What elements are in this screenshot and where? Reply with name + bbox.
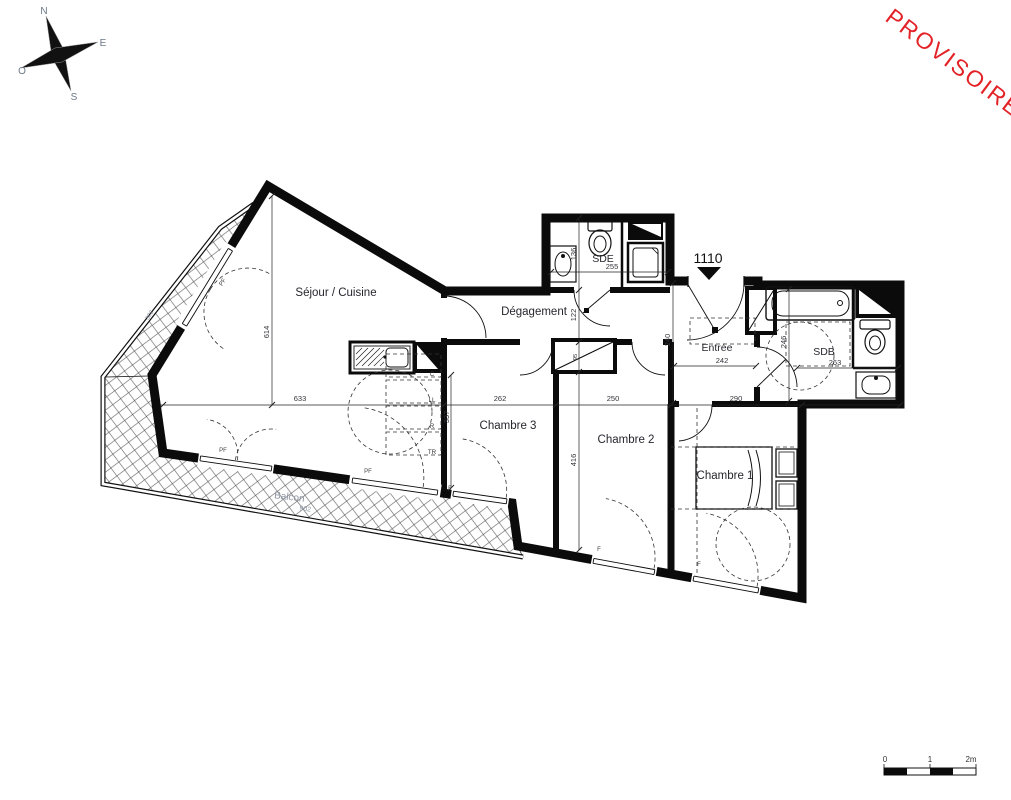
f-chambre1-label: F — [697, 562, 701, 568]
scale-bar: 0 1 2m — [883, 755, 977, 775]
floor-plan-drawing: 633 262 250 290 242 255 263 614 136 122 … — [0, 0, 1011, 800]
kitchen-sink-icon — [350, 342, 414, 373]
unit-number: 1110 — [693, 250, 722, 266]
entree-closet — [553, 340, 615, 372]
dim-sdb-width: 263 — [829, 358, 842, 367]
dim-sejour-height: 614 — [262, 326, 271, 339]
floor-plan-page: 633 262 250 290 242 255 263 614 136 122 … — [0, 0, 1011, 800]
dim-entree-height: 240 — [663, 334, 672, 347]
provisoire-watermark: PROVISOIRE — [881, 3, 1011, 122]
sde-toilet-icon — [588, 221, 612, 256]
scale-zero: 0 — [883, 755, 888, 764]
appliance-c-label: C — [430, 371, 435, 378]
room-label-entree: Entrée — [702, 342, 733, 354]
compass-rose-icon: N E O S — [18, 6, 107, 103]
pf-sejour-label: PF — [219, 448, 227, 454]
sdb-sink-icon — [856, 372, 896, 398]
room-label-chambre1: Chambre 1 — [697, 470, 754, 482]
compass-o: O — [18, 66, 26, 77]
appliance-tr-label: TR — [428, 449, 437, 456]
kitchen-duct-icon — [414, 342, 441, 373]
entrance-door-gap — [688, 274, 744, 287]
pf-sejour2-label: PF — [364, 469, 372, 475]
compass-s: S — [71, 92, 78, 103]
room-label-chambre3: Chambre 3 — [480, 420, 537, 432]
f-chambre3-label: F — [448, 486, 452, 492]
room-label-sejour: Séjour / Cuisine — [295, 287, 376, 299]
dim-chambre1-width: 290 — [730, 394, 743, 403]
door-handle — [712, 327, 718, 333]
sdb-toilet-icon — [860, 320, 890, 354]
dim-chambre3-width: 262 — [494, 394, 507, 403]
f-window-chambre1 — [690, 513, 772, 598]
compass-e: E — [100, 38, 107, 49]
technical-duct-entree — [747, 288, 775, 333]
dim-placard-depth: 95 — [573, 354, 579, 360]
room-label-degagement: Dégagement — [501, 306, 568, 318]
dim-chambre2-width: 250 — [607, 394, 620, 403]
sdb-bathtub-icon — [766, 287, 855, 320]
f-window-chambre2 — [590, 498, 668, 580]
exterior-walls — [152, 186, 900, 598]
dim-sejour-width: 633 — [294, 394, 307, 403]
dim-chambre3-height: 337 — [442, 411, 451, 424]
door-handle — [584, 308, 589, 313]
compass-n: N — [40, 6, 47, 17]
scale-one: 1 — [928, 755, 933, 764]
balcony-areas — [103, 204, 523, 557]
dim-chambre2-height: 416 — [569, 454, 578, 467]
room-label-sde: SDE — [592, 253, 614, 265]
room-label-sdb: SDB — [813, 346, 835, 358]
dim-sdb-height: 246 — [779, 336, 788, 349]
dim-degagement-height: 122 — [569, 309, 578, 322]
appliance-r-label: R — [430, 423, 435, 430]
scale-two: 2m — [965, 755, 976, 764]
f-window-chambre3 — [450, 438, 516, 509]
appliance-ll-label: LL — [429, 397, 436, 404]
sdb-duct-icon — [856, 286, 898, 318]
room-label-chambre2: Chambre 2 — [598, 434, 655, 446]
dim-balcon-length: 902 — [299, 505, 312, 513]
f-chambre2-label: F — [597, 547, 601, 553]
door-swings — [444, 283, 797, 441]
dim-entree-width: 242 — [716, 356, 729, 365]
dim-sde-height: 136 — [569, 248, 578, 261]
sde-duct-icon — [628, 221, 663, 282]
